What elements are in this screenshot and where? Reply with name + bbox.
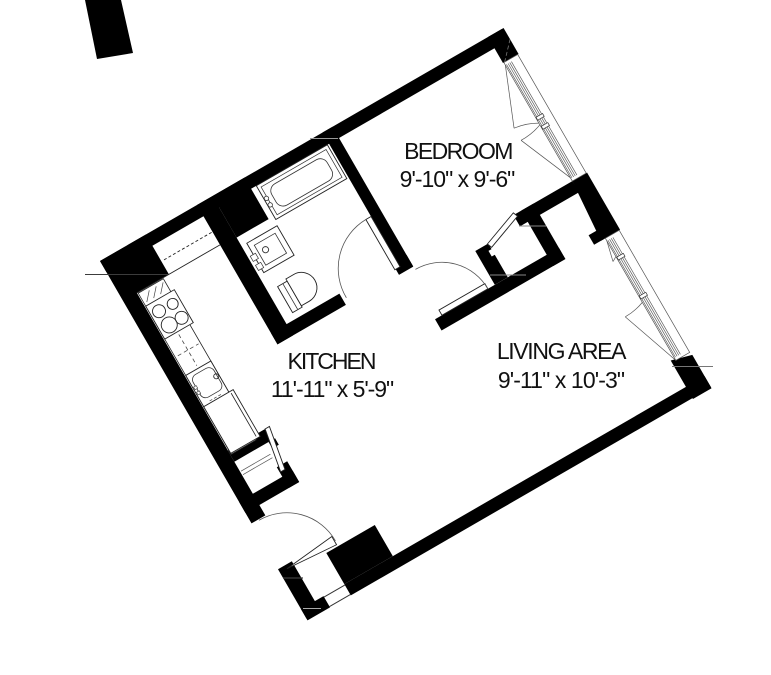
svg-text:LIVING AREA: LIVING AREA [497,338,627,364]
svg-text:9'-10" x 9'-6": 9'-10" x 9'-6" [400,166,516,192]
svg-text:9'-11" x 10'-3": 9'-11" x 10'-3" [498,367,625,393]
svg-text:KITCHEN: KITCHEN [288,348,375,374]
svg-text:11'-11" x 5'-9": 11'-11" x 5'-9" [271,376,394,402]
svg-text:BEDROOM: BEDROOM [404,138,512,164]
